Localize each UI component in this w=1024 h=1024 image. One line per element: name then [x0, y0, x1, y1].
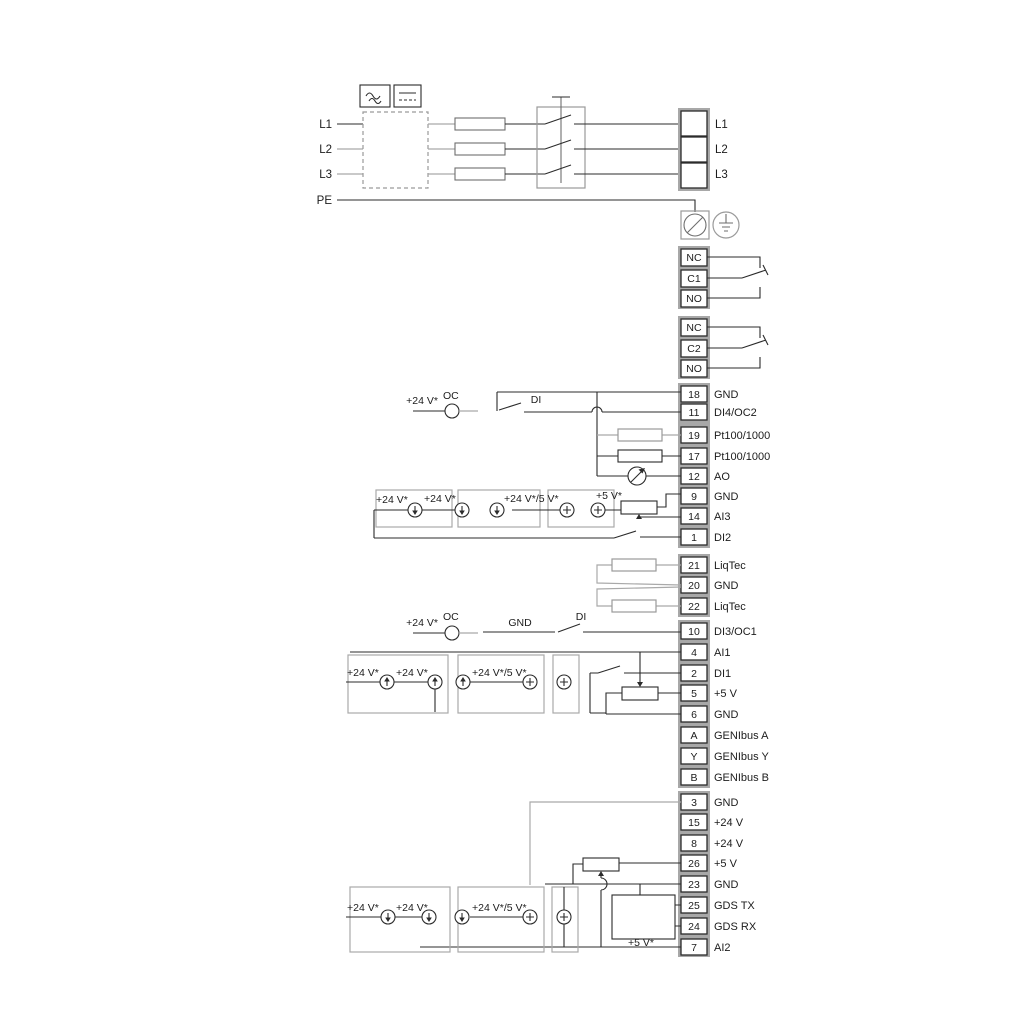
relay2-label-nc: NC [686, 322, 702, 334]
potentiometer-symbol [621, 501, 657, 514]
open-collector-icon [445, 404, 459, 418]
svg-text:18: 18 [688, 389, 700, 401]
terminal-row: 21LiqTec [681, 557, 746, 573]
oc-label: OC [443, 611, 459, 623]
svg-text:7: 7 [691, 942, 697, 954]
switch-contact [614, 531, 681, 538]
svg-text:GND: GND [714, 879, 739, 891]
open-collector-icon [445, 626, 459, 640]
fuse-symbol-l1 [455, 118, 505, 130]
potentiometer-wiper-arrow [637, 682, 643, 687]
terminal-row: 15+24 V [681, 814, 744, 830]
v24-label: +24 V* [396, 902, 428, 914]
wire-gnd-return [530, 802, 681, 885]
svg-text:1: 1 [691, 532, 697, 544]
potentiometer-wiper-arrow [598, 871, 604, 876]
switch-contact [558, 624, 580, 632]
svg-text:12: 12 [688, 471, 700, 483]
terminal-row: 10DI3/OC1 [681, 623, 757, 639]
svg-text:GND: GND [714, 709, 739, 721]
svg-text:GENIbus B: GENIbus B [714, 772, 769, 784]
screw-terminal-slot [687, 217, 703, 233]
resistor-sensor-icon [612, 600, 656, 612]
terminal-row: 4AI1 [681, 644, 731, 660]
digital-input-4-section: +24 V* OC DI [406, 390, 681, 485]
terminal-row: 1DI2 [681, 529, 731, 545]
svg-text:LiqTec: LiqTec [714, 560, 746, 572]
resistor-sensor-icon [612, 559, 656, 571]
svg-text:A: A [690, 730, 697, 742]
terminal-row: 22LiqTec [681, 598, 746, 614]
svg-text:24: 24 [688, 921, 700, 933]
svg-text:DI1: DI1 [714, 668, 731, 680]
svg-text:GDS TX: GDS TX [714, 900, 755, 912]
svg-text:GENIbus A: GENIbus A [714, 730, 769, 742]
fuse-symbol-l3 [455, 168, 505, 180]
terminal-row: BGENIbus B [681, 769, 769, 785]
terminal-row: YGENIbus Y [681, 748, 769, 764]
svg-text:B: B [690, 772, 697, 784]
relay2-label-no: NO [686, 363, 702, 375]
mains-terminal-cell-l3 [681, 163, 707, 188]
terminal-strip: 18GND 11DI4/OC2 19Pt100/1000 17Pt100/100… [678, 383, 770, 957]
mains-terminal-label-l3: L3 [715, 169, 728, 181]
svg-text:DI2: DI2 [714, 532, 731, 544]
wires-to-mains-terminals [574, 124, 681, 174]
digital-input-3-section: +24 V* OC GND DI [406, 611, 681, 640]
switch-contact [499, 403, 521, 410]
wire [597, 565, 681, 585]
svg-text:DI3/OC1: DI3/OC1 [714, 626, 757, 638]
mains-terminal-cell-l1 [681, 111, 707, 136]
resistor-sensor-icon [618, 450, 662, 462]
relay1-label-no: NO [686, 293, 702, 305]
dc-symbol-box [394, 85, 421, 107]
terminal-row: 24GDS RX [681, 918, 757, 934]
analog-input-1-section: +24 V* +24 V* +24 V*/5 V* [346, 652, 681, 714]
terminal-row: 12AO [681, 468, 730, 484]
svg-text:DI4/OC2: DI4/OC2 [714, 407, 757, 419]
gds-sensor-box [612, 895, 675, 939]
svg-text:4: 4 [691, 647, 697, 659]
terminal-row: 7AI2 [681, 939, 731, 955]
input-label-l2: L2 [319, 144, 332, 156]
relay2-changeover-contact [742, 335, 768, 348]
relay2-contact-wires [707, 327, 760, 368]
relay1-changeover-contact [742, 265, 768, 278]
v24-label: +24 V* [347, 667, 379, 679]
svg-text:Pt100/1000: Pt100/1000 [714, 451, 770, 463]
svg-text:6: 6 [691, 709, 697, 721]
wire-pe [337, 200, 695, 212]
wires-to-fuses [428, 124, 455, 174]
relay1-contact-wires [707, 257, 760, 298]
wire [573, 864, 583, 884]
relay-section: NC C1 NO NC C2 NO [678, 246, 768, 379]
svg-text:22: 22 [688, 601, 700, 613]
wire [657, 494, 681, 507]
gnd-label: GND [508, 617, 532, 629]
fuse-symbol-l2 [455, 143, 505, 155]
terminal-row: AGENIbus A [681, 727, 769, 743]
v24-label: +24 V* [396, 667, 428, 679]
gds-sensor-section: +5 V* +24 V* +24 V* +24 V*/5 V* [346, 802, 681, 952]
v24or5-label: +24 V*/5 V* [472, 667, 527, 679]
wiring-diagram-svg: L1 L2 L3 PE L1 L2 L3 [0, 0, 1024, 1024]
svg-text:20: 20 [688, 580, 700, 592]
svg-text:+24 V: +24 V [714, 838, 744, 850]
svg-text:AI2: AI2 [714, 942, 731, 954]
potentiometer-symbol [583, 858, 619, 871]
terminal-row: 11DI4/OC2 [681, 404, 757, 420]
svg-text:LiqTec: LiqTec [714, 601, 746, 613]
terminal-row: 25GDS TX [681, 897, 755, 913]
v5-label: +5 V* [596, 490, 622, 502]
wiring-diagram-canvas: L1 L2 L3 PE L1 L2 L3 [0, 0, 1024, 1024]
wire [590, 673, 606, 713]
svg-text:GDS RX: GDS RX [714, 921, 757, 933]
analog-input-3-section: +24 V* +24 V* +24 V*/5 V* +5 V* [374, 490, 681, 538]
svg-text:5: 5 [691, 688, 697, 700]
svg-text:2: 2 [691, 668, 697, 680]
wire-with-hop [524, 407, 681, 412]
disconnect-switch-blades [545, 115, 571, 174]
terminal-row: 17Pt100/1000 [681, 448, 770, 464]
mains-terminal-label-l1: L1 [715, 119, 728, 131]
input-label-l1: L1 [319, 119, 332, 131]
di-label: DI [576, 611, 587, 623]
svg-text:+5 V: +5 V [714, 858, 738, 870]
svg-text:Pt100/1000: Pt100/1000 [714, 430, 770, 442]
relay1-label-c1: C1 [687, 273, 701, 285]
svg-text:21: 21 [688, 560, 700, 572]
resistor-sensor-icon [618, 429, 662, 441]
terminal-row: 2DI1 [681, 665, 731, 681]
potentiometer-symbol [622, 687, 658, 700]
power-input-section: L1 L2 L3 PE L1 L2 L3 [317, 85, 739, 239]
svg-text:GENIbus Y: GENIbus Y [714, 751, 769, 763]
terminal-row: 19Pt100/1000 [681, 427, 770, 443]
v24-label: +24 V* [347, 902, 379, 914]
v24-label: +24 V* [406, 395, 438, 407]
wire-with-hop [601, 876, 607, 947]
terminal-row: 14AI3 [681, 508, 731, 524]
svg-text:10: 10 [688, 626, 700, 638]
svg-text:25: 25 [688, 900, 700, 912]
svg-text:GND: GND [714, 491, 739, 503]
svg-text:26: 26 [688, 858, 700, 870]
svg-text:+24 V: +24 V [714, 817, 744, 829]
wire [639, 517, 681, 519]
svg-text:AI1: AI1 [714, 647, 731, 659]
svg-text:15: 15 [688, 817, 700, 829]
earth-ground-bars [719, 214, 733, 231]
svg-text:14: 14 [688, 511, 700, 523]
svg-text:GND: GND [714, 580, 739, 592]
v24or5-label: +24 V*/5 V* [504, 493, 559, 505]
v24-label: +24 V* [376, 494, 408, 506]
svg-text:+5 V: +5 V [714, 688, 738, 700]
svg-text:3: 3 [691, 797, 697, 809]
wire [597, 587, 681, 606]
v24-label: +24 V* [406, 617, 438, 629]
svg-text:AI3: AI3 [714, 511, 731, 523]
svg-text:Y: Y [690, 751, 697, 763]
mains-terminal-label-l2: L2 [715, 144, 728, 156]
svg-text:GND: GND [714, 389, 739, 401]
switch-contact [598, 666, 620, 673]
wires-to-switch [505, 124, 545, 174]
svg-text:9: 9 [691, 491, 697, 503]
input-label-pe: PE [317, 195, 333, 207]
relay1-label-nc: NC [686, 252, 702, 264]
oc-label: OC [443, 390, 459, 402]
mains-terminal-cell-l2 [681, 137, 707, 162]
ac-symbol-box [360, 85, 390, 107]
input-label-l3: L3 [319, 169, 332, 181]
svg-text:23: 23 [688, 879, 700, 891]
wire-di-box [497, 392, 681, 411]
svg-text:19: 19 [688, 430, 700, 442]
v24or5-label: +24 V*/5 V* [472, 902, 527, 914]
v24-label: +24 V* [424, 493, 456, 505]
converter-dashed-box [363, 112, 428, 188]
liqtec-sensor-section [597, 559, 681, 612]
svg-text:8: 8 [691, 838, 697, 850]
relay2-label-c2: C2 [687, 343, 701, 355]
svg-text:AO: AO [714, 471, 730, 483]
svg-text:GND: GND [714, 797, 739, 809]
svg-text:17: 17 [688, 451, 700, 463]
di-label: DI [531, 394, 542, 406]
svg-text:11: 11 [689, 407, 700, 419]
terminal-row: 8+24 V [681, 835, 744, 851]
